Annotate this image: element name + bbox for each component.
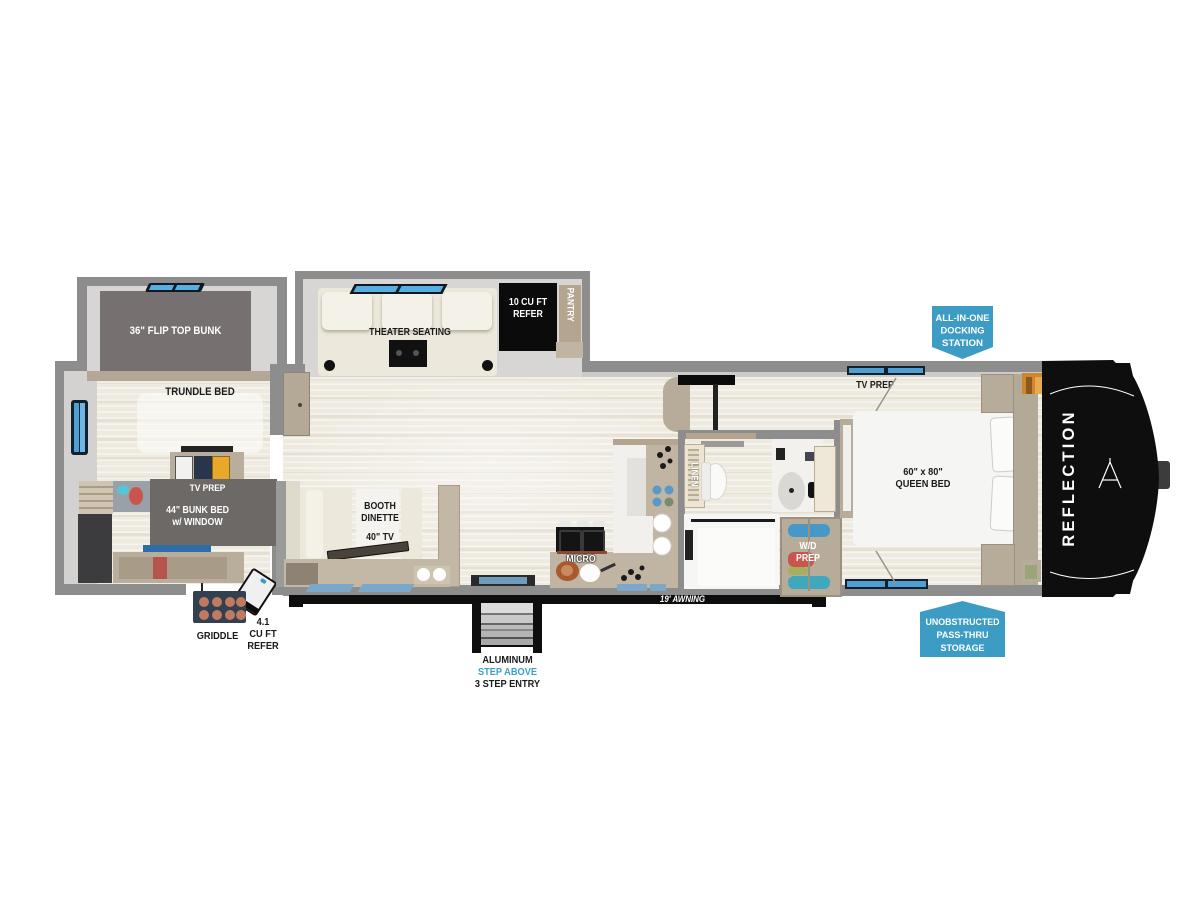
svg-text:REFLECTION: REFLECTION [1060,409,1078,546]
svg-text:UNOBSTRUCTED: UNOBSTRUCTED [926,617,1000,628]
svg-text:DOCKING: DOCKING [941,326,985,337]
svg-text:STORAGE: STORAGE [941,643,985,654]
svg-text:STATION: STATION [942,338,983,349]
svg-text:PASS-THRU: PASS-THRU [937,630,989,641]
svg-text:ALL-IN-ONE: ALL-IN-ONE [936,313,990,324]
